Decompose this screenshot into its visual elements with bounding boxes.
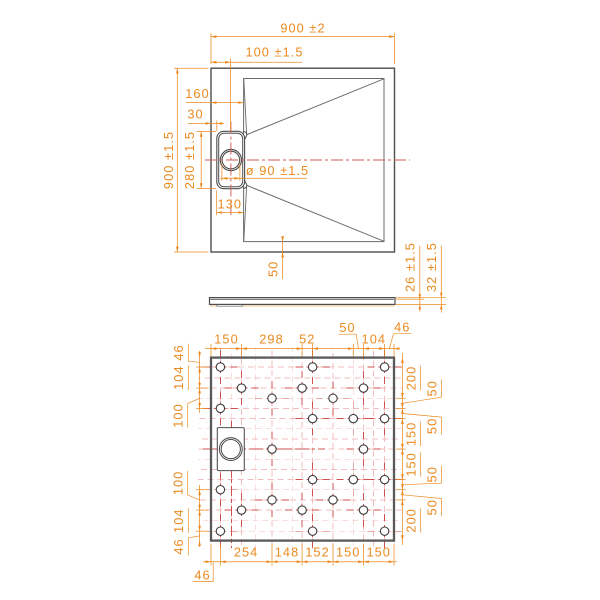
svg-text:150: 150	[404, 452, 419, 477]
svg-text:ø 90 ±1.5: ø 90 ±1.5	[246, 163, 309, 178]
svg-text:26 ±1.5: 26 ±1.5	[403, 242, 418, 292]
svg-text:100: 100	[171, 403, 186, 428]
svg-text:50: 50	[424, 380, 439, 396]
svg-text:900 ±2: 900 ±2	[280, 21, 325, 36]
svg-text:46: 46	[194, 568, 210, 583]
svg-text:32 ±1.5: 32 ±1.5	[424, 242, 439, 292]
svg-text:100: 100	[171, 471, 186, 496]
svg-text:50: 50	[424, 418, 439, 434]
svg-text:148: 148	[275, 545, 300, 560]
svg-text:46: 46	[171, 538, 186, 554]
svg-text:150: 150	[366, 545, 391, 560]
svg-text:46: 46	[394, 320, 410, 335]
svg-text:254: 254	[234, 545, 259, 560]
svg-text:50: 50	[424, 499, 439, 515]
svg-text:280 ±1.5: 280 ±1.5	[182, 131, 197, 189]
svg-text:104: 104	[171, 508, 186, 533]
svg-text:150: 150	[336, 545, 361, 560]
svg-text:298: 298	[259, 331, 284, 346]
svg-text:150: 150	[214, 331, 239, 346]
svg-text:152: 152	[305, 545, 330, 560]
svg-text:200: 200	[404, 508, 419, 533]
svg-text:100 ±1.5: 100 ±1.5	[245, 45, 303, 60]
svg-text:150: 150	[404, 422, 419, 447]
svg-text:200: 200	[404, 366, 419, 391]
svg-text:50: 50	[424, 466, 439, 482]
svg-text:50: 50	[266, 261, 281, 277]
svg-text:30: 30	[187, 107, 203, 122]
svg-text:52: 52	[299, 331, 315, 346]
svg-text:130: 130	[218, 196, 243, 211]
svg-text:160: 160	[185, 86, 210, 101]
svg-text:46: 46	[171, 344, 186, 360]
svg-text:104: 104	[171, 365, 186, 390]
svg-text:50: 50	[339, 320, 355, 335]
svg-text:104: 104	[362, 331, 387, 346]
svg-text:900 ±1.5: 900 ±1.5	[161, 131, 176, 189]
